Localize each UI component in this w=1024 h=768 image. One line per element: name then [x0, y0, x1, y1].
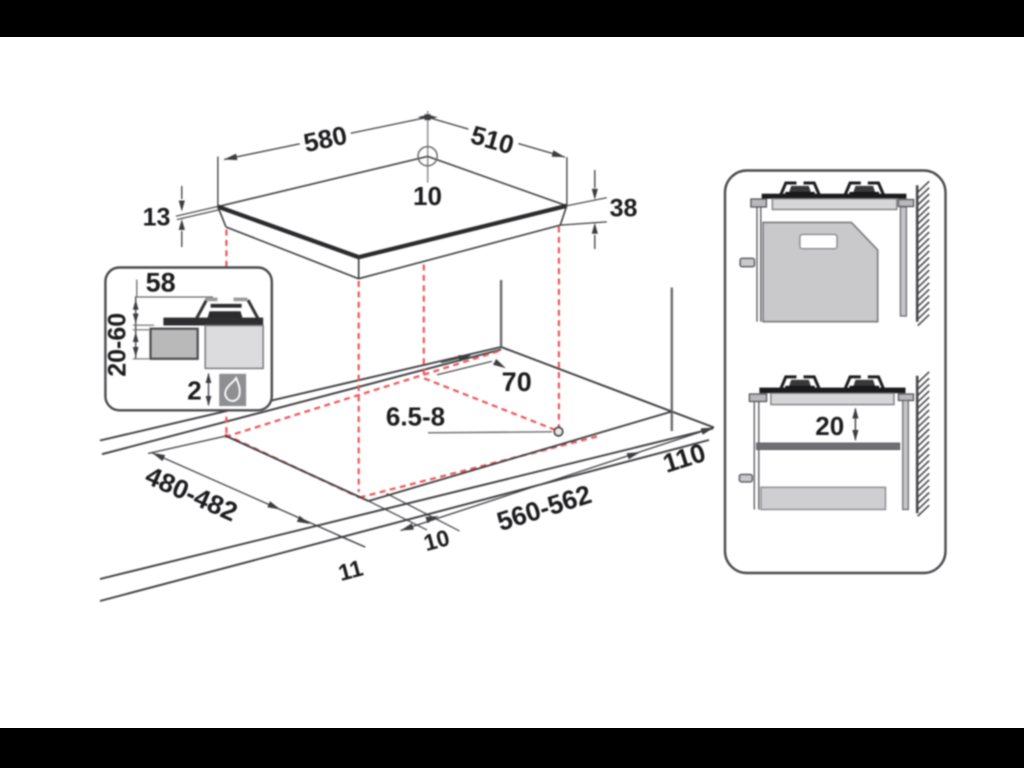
svg-text:70: 70	[502, 367, 532, 397]
svg-text:2: 2	[187, 375, 201, 405]
svg-text:58: 58	[146, 267, 176, 297]
svg-text:10: 10	[421, 524, 452, 556]
svg-text:38: 38	[610, 194, 638, 222]
svg-text:510: 510	[467, 119, 517, 160]
svg-text:13: 13	[143, 203, 171, 231]
svg-text:20: 20	[815, 411, 844, 441]
svg-text:580: 580	[301, 120, 350, 158]
svg-text:10: 10	[413, 181, 442, 211]
svg-text:11: 11	[335, 554, 365, 585]
svg-text:20-60: 20-60	[103, 313, 131, 377]
svg-text:560-562: 560-562	[493, 479, 595, 537]
svg-text:6.5-8: 6.5-8	[386, 401, 445, 431]
